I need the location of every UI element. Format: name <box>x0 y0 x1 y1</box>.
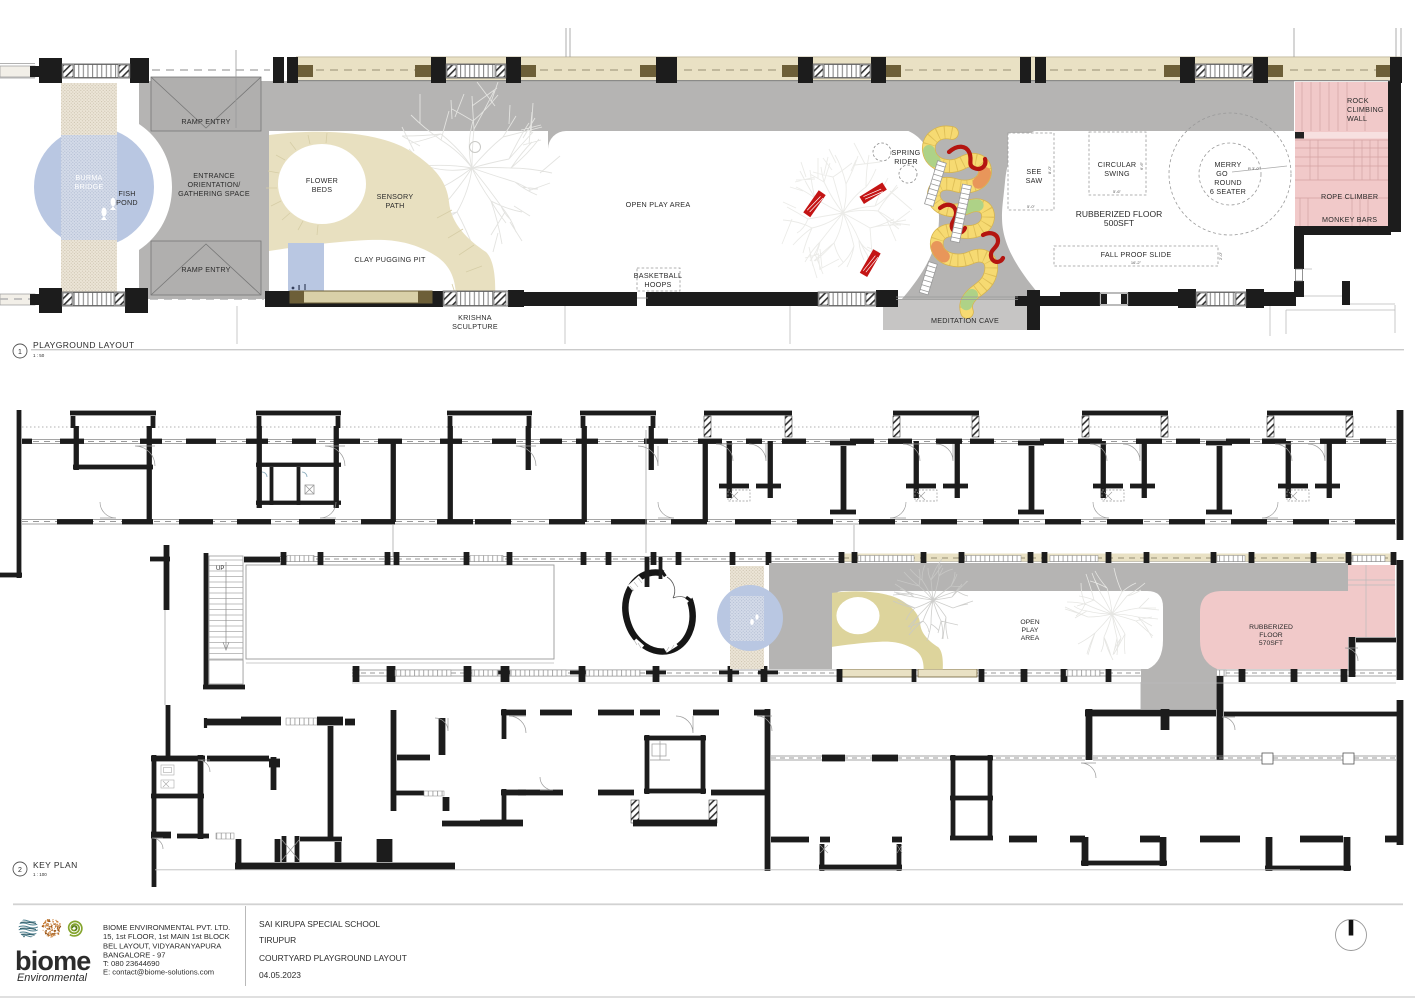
svg-text:CLIMBING: CLIMBING <box>1347 105 1384 114</box>
svg-text:ORIENTATION/: ORIENTATION/ <box>187 180 240 189</box>
svg-text:BASKETBALL: BASKETBALL <box>634 271 682 280</box>
svg-text:FLOOR: FLOOR <box>1259 632 1283 639</box>
svg-text:5'-0": 5'-0" <box>1027 204 1036 209</box>
svg-text:PLAY: PLAY <box>1022 627 1039 634</box>
svg-text:BIOME ENVIRONMENTAL PVT. LTD.: BIOME ENVIRONMENTAL PVT. LTD. <box>103 923 230 932</box>
svg-text:SWING: SWING <box>1104 169 1130 178</box>
svg-text:PATH: PATH <box>385 201 404 210</box>
svg-text:1: 1 <box>18 349 22 356</box>
svg-text:POND: POND <box>116 198 138 207</box>
svg-text:CLAY PUGGING PIT: CLAY PUGGING PIT <box>354 255 426 264</box>
svg-text:AREA: AREA <box>1021 635 1040 642</box>
svg-text:MONKEY BARS: MONKEY BARS <box>1322 215 1377 224</box>
svg-text:RUBBERIZED: RUBBERIZED <box>1249 624 1293 631</box>
svg-text:RAMP ENTRY: RAMP ENTRY <box>181 117 230 126</box>
svg-text:OPEN PLAY AREA: OPEN PLAY AREA <box>626 200 691 209</box>
svg-text:TIRUPUR: TIRUPUR <box>259 935 296 945</box>
svg-text:RIDER: RIDER <box>894 157 918 166</box>
svg-text:CIRCULAR: CIRCULAR <box>1098 160 1137 169</box>
svg-text:Environmental: Environmental <box>17 972 88 984</box>
svg-text:BEDS: BEDS <box>312 185 333 194</box>
svg-text:FALL PROOF SLIDE: FALL PROOF SLIDE <box>1101 250 1172 259</box>
svg-text:GO: GO <box>1216 169 1228 178</box>
svg-text:ENTRANCE: ENTRANCE <box>193 171 235 180</box>
svg-text:1 : 50: 1 : 50 <box>33 353 45 358</box>
svg-text:PLAYGROUND LAYOUT: PLAYGROUND LAYOUT <box>33 340 134 350</box>
svg-text:MERRY: MERRY <box>1214 160 1241 169</box>
svg-text:SENSORY: SENSORY <box>377 192 414 201</box>
svg-text:16'-2": 16'-2" <box>1131 260 1142 265</box>
svg-text:COURTYARD PLAYGROUND LAYOUT: COURTYARD PLAYGROUND LAYOUT <box>259 953 407 963</box>
svg-text:BEL LAYOUT, VIDYARANYAPURA: BEL LAYOUT, VIDYARANYAPURA <box>103 941 222 950</box>
svg-text:ROCK: ROCK <box>1347 96 1369 105</box>
svg-text:6'-6": 6'-6" <box>1139 161 1144 170</box>
svg-text:GATHERING SPACE: GATHERING SPACE <box>178 189 250 198</box>
svg-text:BRIDGE: BRIDGE <box>74 182 103 191</box>
svg-text:KEY PLAN: KEY PLAN <box>33 860 78 870</box>
svg-text:UP: UP <box>216 566 224 572</box>
svg-text:ROUND: ROUND <box>1214 178 1242 187</box>
svg-text:15, 1st FLOOR, 1st MAIN 1st BL: 15, 1st FLOOR, 1st MAIN 1st BLOCK <box>103 932 230 941</box>
svg-text:SEE: SEE <box>1026 167 1041 176</box>
svg-text:2'-0": 2'-0" <box>1218 251 1223 260</box>
svg-text:04.05.2023: 04.05.2023 <box>259 970 301 980</box>
svg-text:SAI KIRUPA SPECIAL SCHOOL: SAI KIRUPA SPECIAL SCHOOL <box>259 919 380 929</box>
svg-text:SAW: SAW <box>1026 176 1043 185</box>
svg-text:FISH: FISH <box>118 189 135 198</box>
svg-text:ROPE CLIMBER: ROPE CLIMBER <box>1321 192 1378 201</box>
svg-text:R 3'-0": R 3'-0" <box>1248 166 1261 171</box>
svg-text:OPEN: OPEN <box>1020 619 1039 626</box>
svg-text:500SFT: 500SFT <box>1104 218 1134 228</box>
svg-text:BURMA: BURMA <box>75 173 102 182</box>
svg-text:SCULPTURE: SCULPTURE <box>452 322 498 331</box>
svg-text:MEDITATION CAVE: MEDITATION CAVE <box>931 316 999 325</box>
svg-text:1 : 100: 1 : 100 <box>33 872 47 877</box>
svg-text:KRISHNA: KRISHNA <box>458 313 492 322</box>
svg-text:HOOPS: HOOPS <box>644 280 671 289</box>
svg-text:FLOWER: FLOWER <box>306 176 338 185</box>
svg-text:WALL: WALL <box>1347 114 1367 123</box>
svg-text:E: contact@biome-solutions.com: E: contact@biome-solutions.com <box>103 968 214 977</box>
svg-text:RAMP ENTRY: RAMP ENTRY <box>181 265 230 274</box>
svg-text:SPRING: SPRING <box>891 148 920 157</box>
svg-text:8'-0": 8'-0" <box>1047 165 1052 174</box>
svg-text:5'-6": 5'-6" <box>1113 189 1122 194</box>
svg-text:2: 2 <box>18 867 22 874</box>
svg-text:6 SEATER: 6 SEATER <box>1210 187 1246 196</box>
svg-text:570SFT: 570SFT <box>1259 640 1283 647</box>
